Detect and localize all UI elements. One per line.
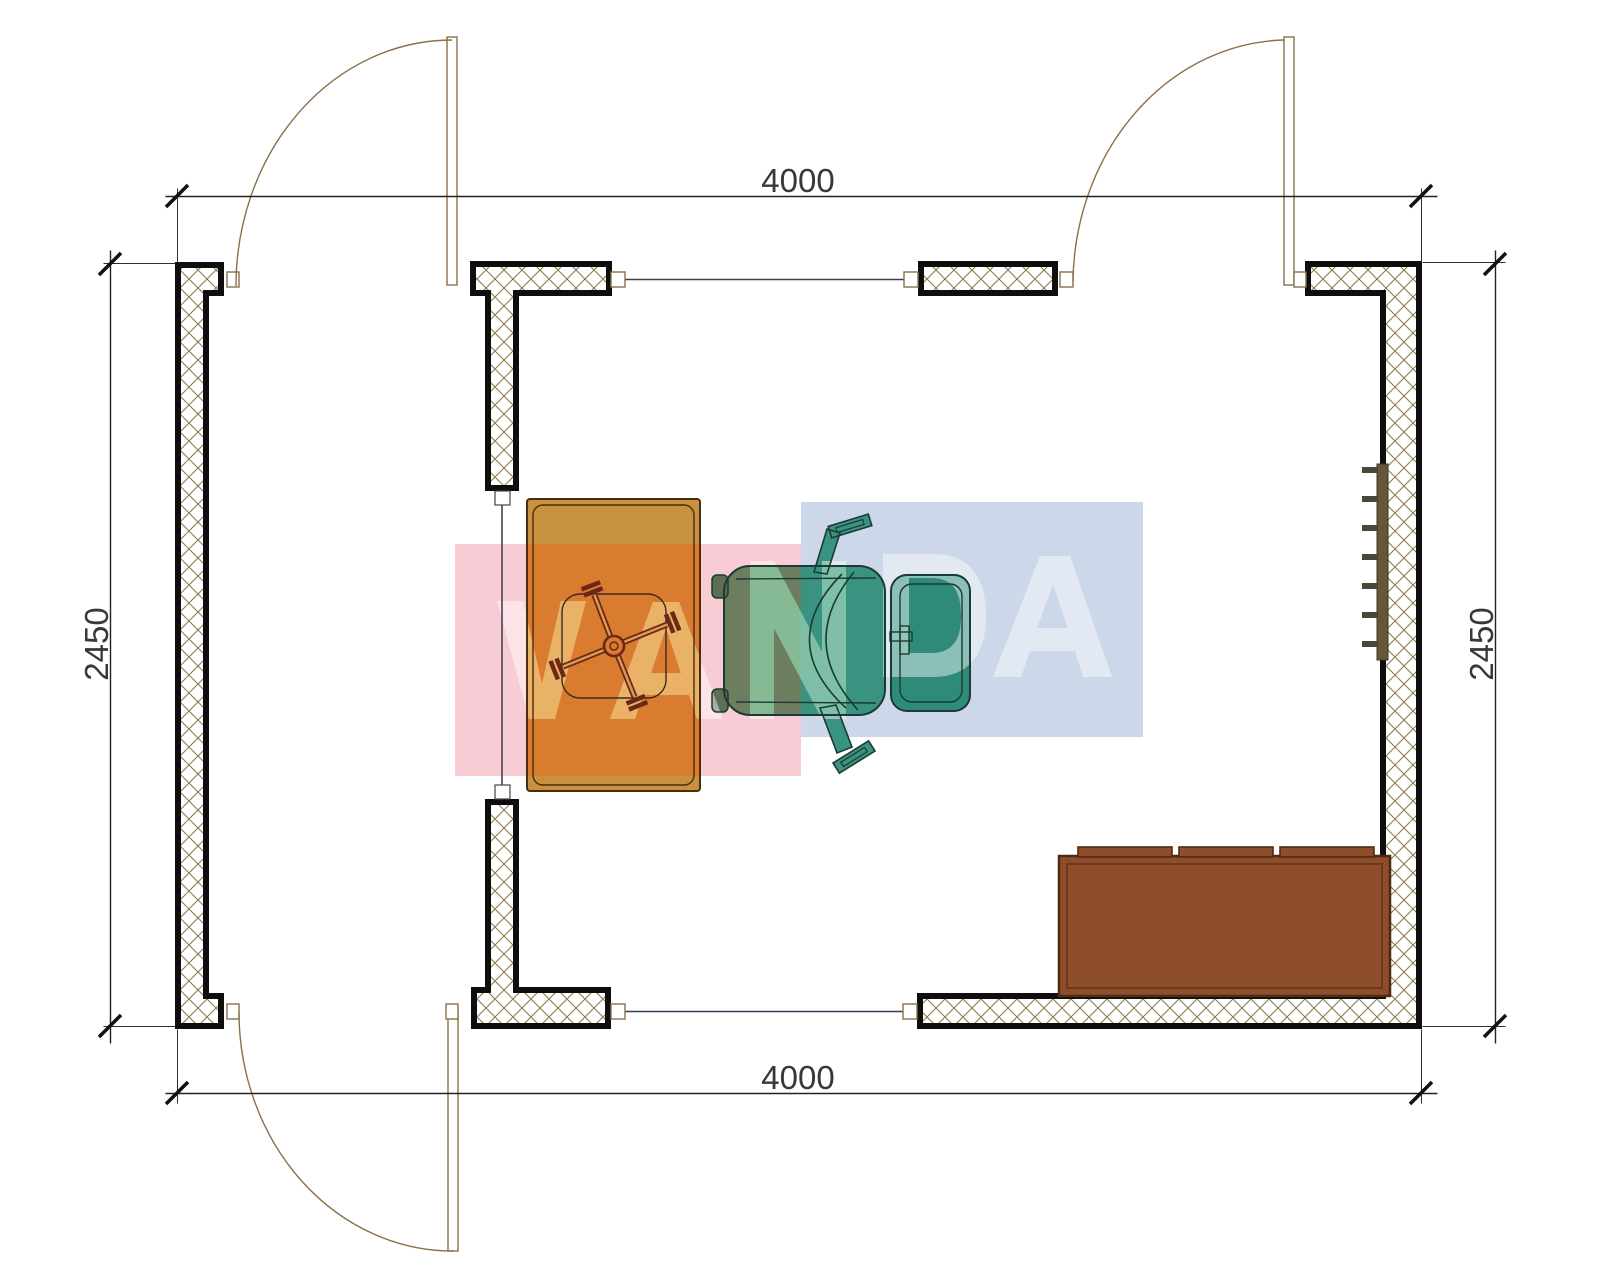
svg-text:2450: 2450 [1463,607,1500,680]
svg-text:4000: 4000 [761,162,834,199]
svg-text:4000: 4000 [761,1059,834,1096]
svg-text:2450: 2450 [78,607,115,680]
